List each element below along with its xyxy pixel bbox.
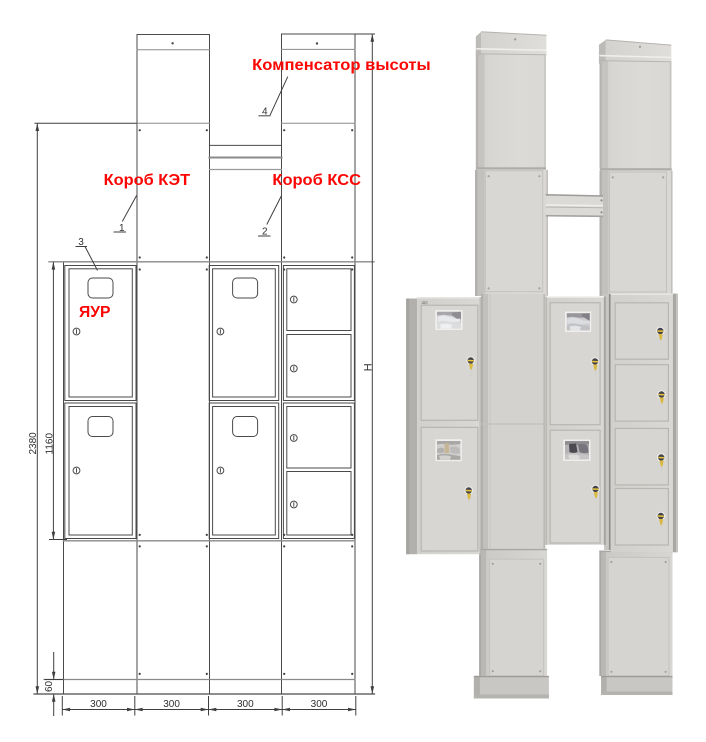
svg-text:2: 2 <box>262 226 268 237</box>
svg-text:H: H <box>362 363 374 371</box>
svg-text:2380: 2380 <box>28 432 39 455</box>
svg-text:300: 300 <box>311 699 328 710</box>
svg-text:300: 300 <box>237 699 254 710</box>
svg-text:3: 3 <box>78 237 84 248</box>
svg-text:1160: 1160 <box>44 433 55 455</box>
svg-text:1: 1 <box>119 223 125 234</box>
svg-text:Компенсатор высоты: Компенсатор высоты <box>252 57 430 74</box>
svg-text:4: 4 <box>262 106 268 117</box>
svg-text:Короб КЭТ: Короб КЭТ <box>104 172 191 189</box>
svg-text:ЩК: ЩК <box>422 300 429 305</box>
svg-text:Короб КСС: Короб КСС <box>272 172 361 189</box>
svg-text:60: 60 <box>44 680 55 692</box>
svg-text:300: 300 <box>90 699 107 710</box>
svg-text:300: 300 <box>163 699 180 710</box>
svg-text:ЯУР: ЯУР <box>79 304 111 321</box>
